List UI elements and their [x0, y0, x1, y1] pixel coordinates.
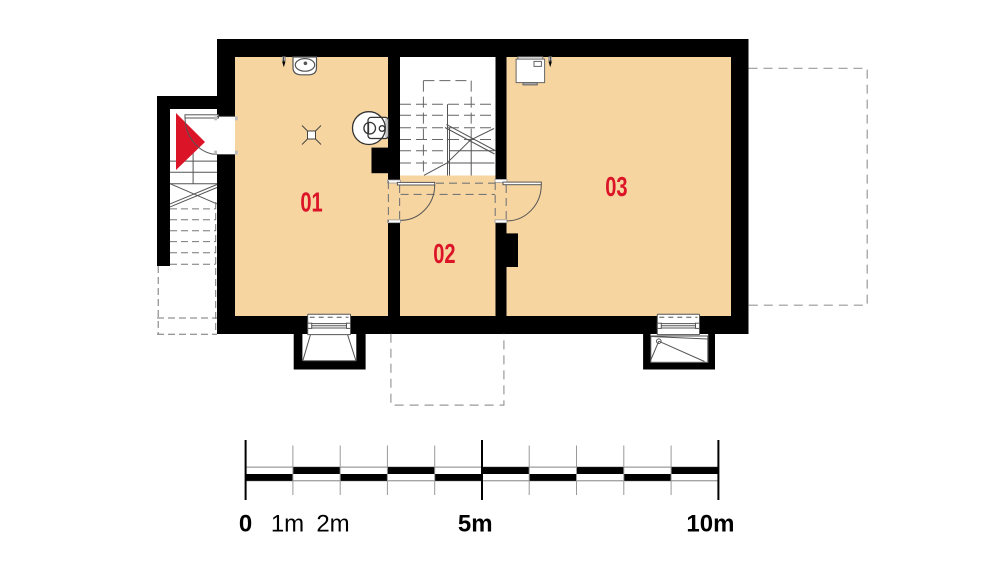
- svg-text:5m: 5m: [458, 510, 493, 537]
- svg-text:2m: 2m: [316, 510, 349, 537]
- svg-text:01: 01: [300, 187, 322, 218]
- svg-text:0: 0: [239, 510, 252, 537]
- svg-text:03: 03: [605, 172, 627, 203]
- svg-text:10m: 10m: [686, 510, 734, 537]
- svg-text:02: 02: [433, 239, 455, 270]
- svg-text:1m: 1m: [271, 510, 304, 537]
